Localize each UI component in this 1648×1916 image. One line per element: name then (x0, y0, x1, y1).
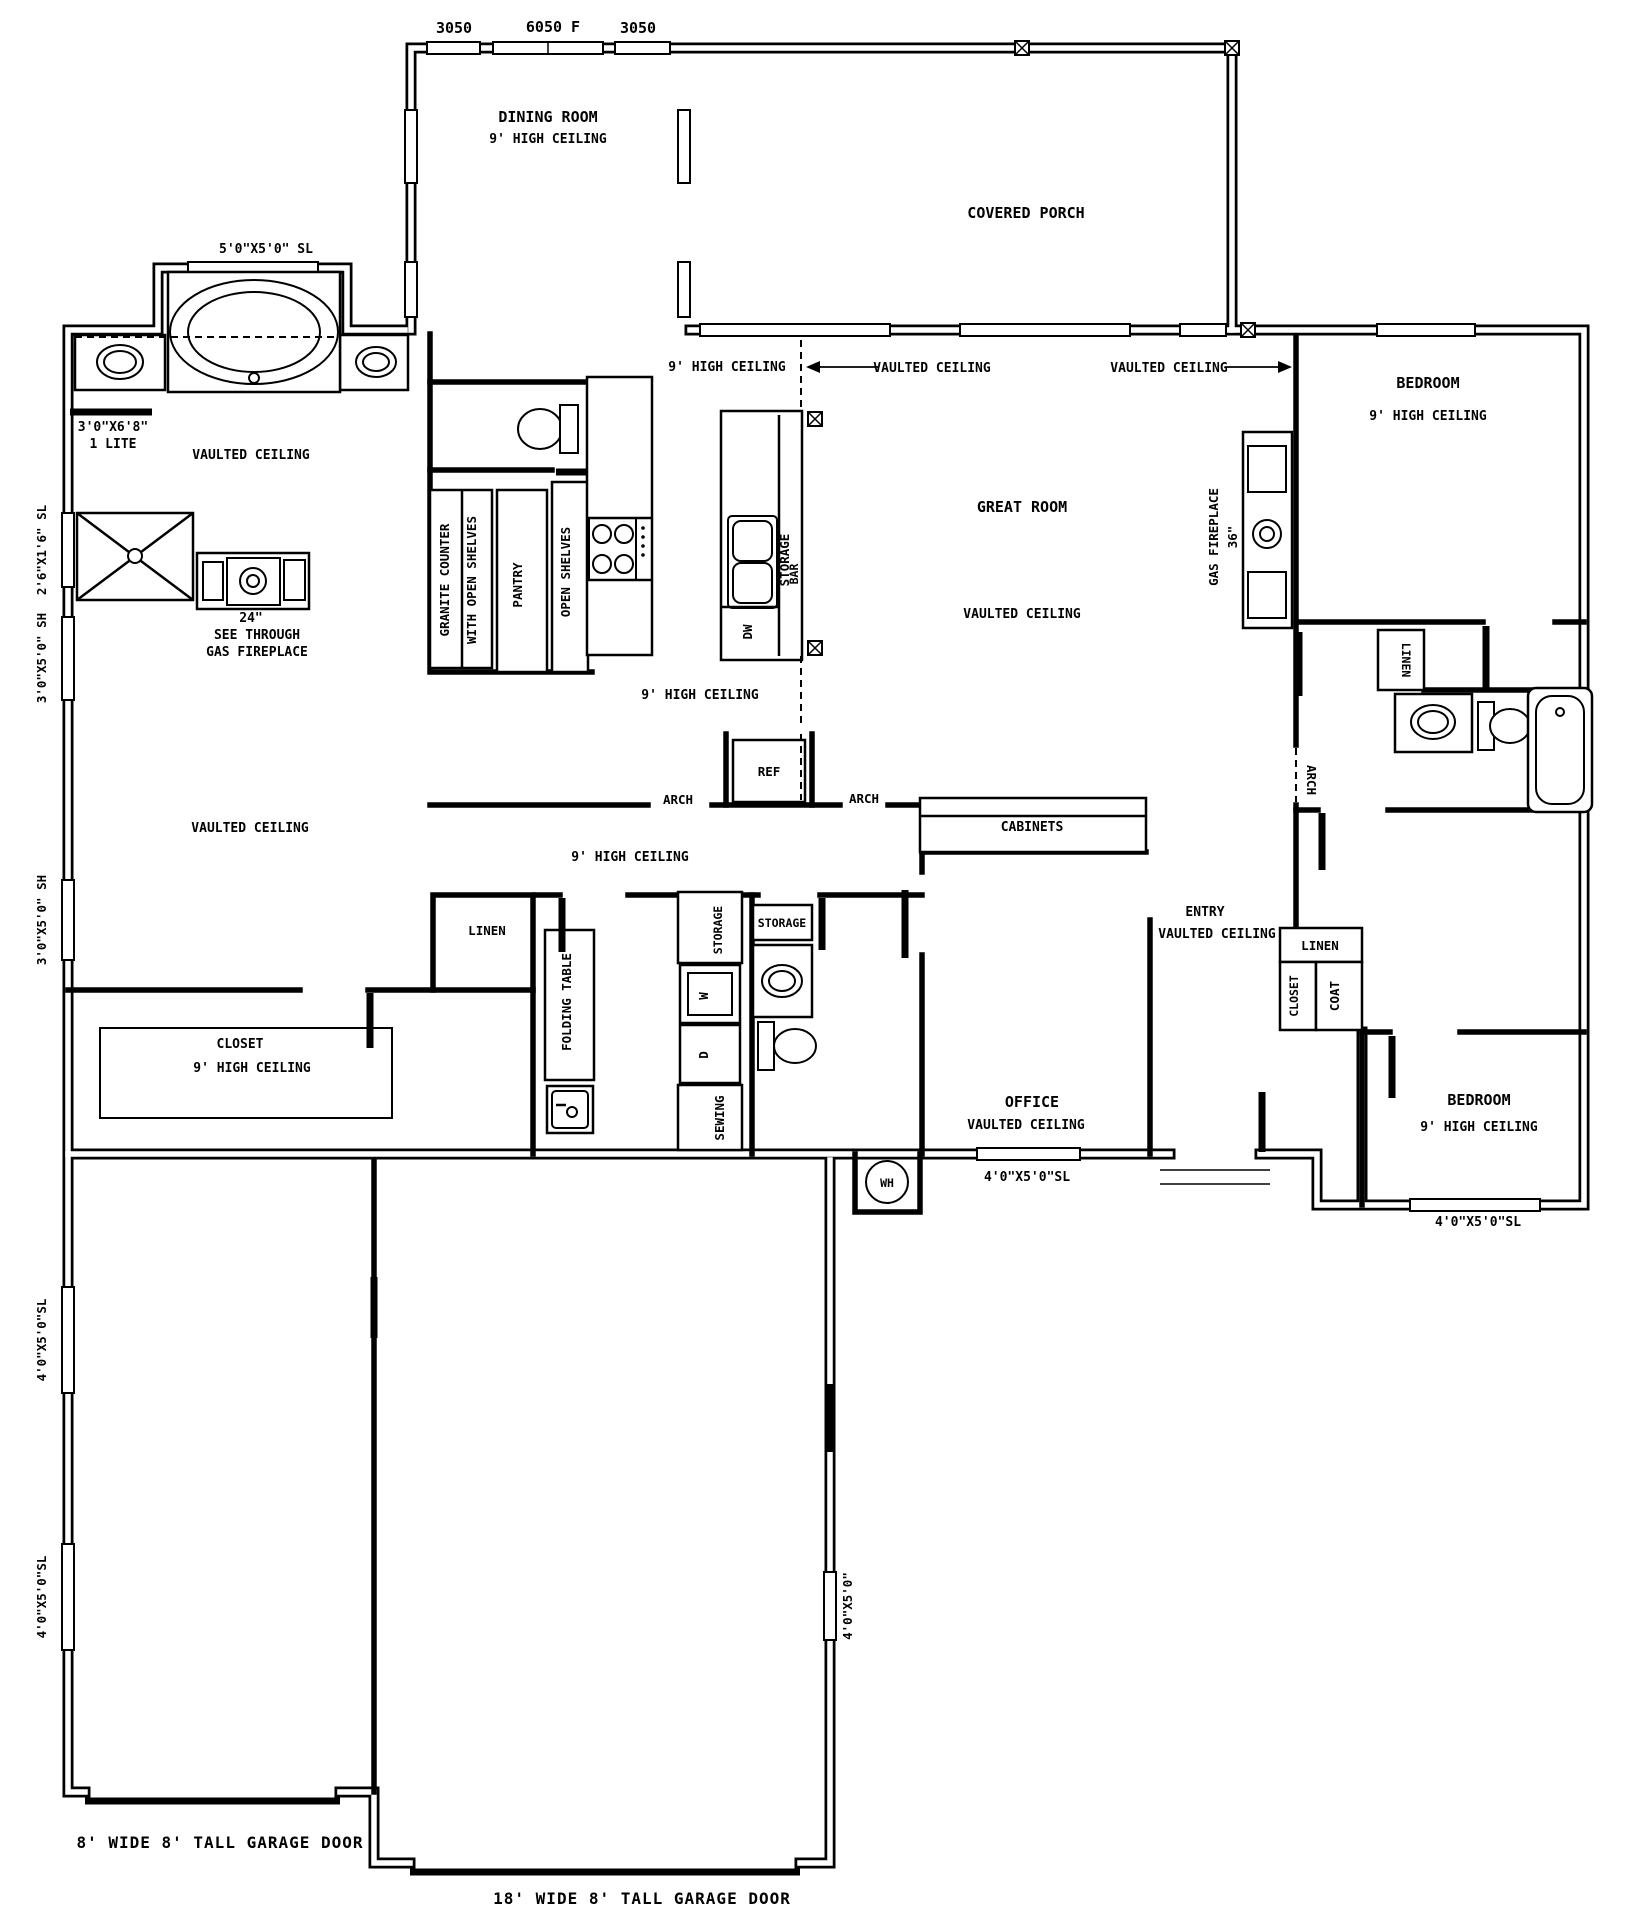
water-heater-label: WH (880, 1176, 894, 1190)
ceiling-label: 9' HIGH CEILING (489, 132, 607, 147)
garage-door-label: 18' WIDE 8' TALL GARAGE DOOR (493, 1889, 791, 1908)
floor-plan-canvas: 3050 6050 F 3050 DINING ROOM 9' HIGH CEI… (0, 0, 1648, 1916)
ceiling-label: 9' HIGH CEILING (641, 688, 759, 703)
kitchen (430, 377, 805, 802)
refrigerator-label: REF (758, 764, 781, 779)
cabinet-label: WITH OPEN SHELVES (464, 516, 479, 644)
window-label: 4'0"X5'0"SL (1435, 1215, 1521, 1230)
cabinet-label: PANTRY (510, 562, 525, 608)
linen-label: LINEN (1399, 643, 1413, 678)
room-label-office: OFFICE (1005, 1093, 1059, 1111)
toilet-icon (758, 1022, 774, 1070)
dishwasher-label: DW (740, 624, 755, 640)
great-room-fireplace (1243, 432, 1292, 628)
fireplace-label: GAS FIREPLACE (1206, 488, 1221, 586)
arrow-right-icon (1278, 361, 1292, 373)
island-label: BAR (787, 564, 801, 585)
room-label-bedroom2: BEDROOM (1447, 1091, 1510, 1109)
ceiling-label: 9' HIGH CEILING (571, 850, 689, 865)
fireplace-label: SEE THROUGH (214, 628, 300, 643)
ceiling-label: 9' HIGH CEILING (668, 360, 786, 375)
window-label: 4'0"X5'0" (840, 1572, 855, 1640)
ceiling-label: VAULTED CEILING (963, 607, 1081, 622)
post-icon (808, 41, 1255, 655)
dim-label: 3050 (620, 19, 656, 37)
ceiling-label: VAULTED CEILING (1158, 927, 1276, 942)
linen-label: LINEN (1301, 938, 1339, 953)
dim-label: 6050 F (526, 18, 580, 36)
sewing-closet (678, 1085, 742, 1150)
ceiling-label: VAULTED CEILING (191, 821, 309, 836)
folding-table-label: FOLDING TABLE (559, 953, 574, 1051)
washer-label: W (696, 992, 711, 1000)
garage-door-label: 8' WIDE 8' TALL GARAGE DOOR (76, 1833, 363, 1852)
door-label: 1 LITE (90, 437, 137, 452)
ceiling-label: VAULTED CEILING (192, 448, 310, 463)
window-label: 4'0"X5'0"SL (984, 1170, 1070, 1185)
ceiling-label: 9' HIGH CEILING (1369, 409, 1487, 424)
room-label-bedroom1: BEDROOM (1396, 374, 1459, 392)
sewing-label: SEWING (712, 1095, 727, 1140)
cabinet-label: GRANITE COUNTER (437, 523, 452, 636)
room-label-great-room: GREAT ROOM (977, 498, 1067, 516)
ceiling-label: VAULTED CEILING (873, 361, 991, 376)
doors (85, 626, 1486, 1872)
ceiling-label: VAULTED CEILING (967, 1118, 1085, 1133)
dim-label: 3050 (436, 19, 472, 37)
shower-drain-icon (128, 549, 142, 563)
window-label: 4'0"X5'0"SL (34, 1555, 49, 1638)
window-label: 4'0"X5'0"SL (34, 1298, 49, 1381)
arch-label: ARCH (1304, 765, 1319, 795)
kitchen-counter-right (587, 377, 652, 655)
cabinet-label: OPEN SHELVES (558, 527, 573, 617)
window-label: 5'0"X5'0" SL (219, 242, 313, 257)
room-label-dining: DINING ROOM (498, 108, 597, 126)
floor-plan-page: 3050 6050 F 3050 DINING ROOM 9' HIGH CEI… (0, 0, 1648, 1916)
fireplace-label: GAS FIREPLACE (206, 645, 308, 660)
window-label: 3'0"X5'0" SH (34, 613, 49, 703)
ceiling-label: 9' HIGH CEILING (1420, 1120, 1538, 1135)
laundry-storage (678, 892, 742, 963)
cabinets-label: CABINETS (1001, 820, 1064, 835)
storage-label: STORAGE (758, 916, 807, 930)
room-label-entry: ENTRY (1185, 905, 1224, 920)
window-label: 3'0"X5'0" SH (34, 875, 49, 965)
ceiling-label: VAULTED CEILING (1110, 361, 1228, 376)
linen-label: LINEN (468, 923, 506, 938)
fireplace-label: 24" (239, 611, 262, 626)
fireplace-label: 36" (1225, 526, 1240, 549)
ceiling-breaks (801, 340, 1296, 802)
toilet-icon (518, 409, 562, 449)
arch-label: ARCH (663, 792, 693, 807)
posts (808, 41, 1255, 655)
closet-label: CLOSET (1287, 975, 1301, 1017)
ceiling-label: 9' HIGH CEILING (193, 1061, 311, 1076)
dryer-label: D (696, 1051, 711, 1059)
room-label-porch: COVERED PORCH (967, 204, 1084, 222)
arrow-left-icon (806, 361, 820, 373)
storage-label: STORAGE (711, 906, 725, 955)
window-label: 2'6"X1'6" SL (34, 504, 49, 595)
coat-label: COAT (1327, 981, 1342, 1011)
arch-label: ARCH (849, 791, 879, 806)
door-label: 3'0"X6'8" (78, 420, 148, 435)
room-label-closet: CLOSET (217, 1037, 264, 1052)
